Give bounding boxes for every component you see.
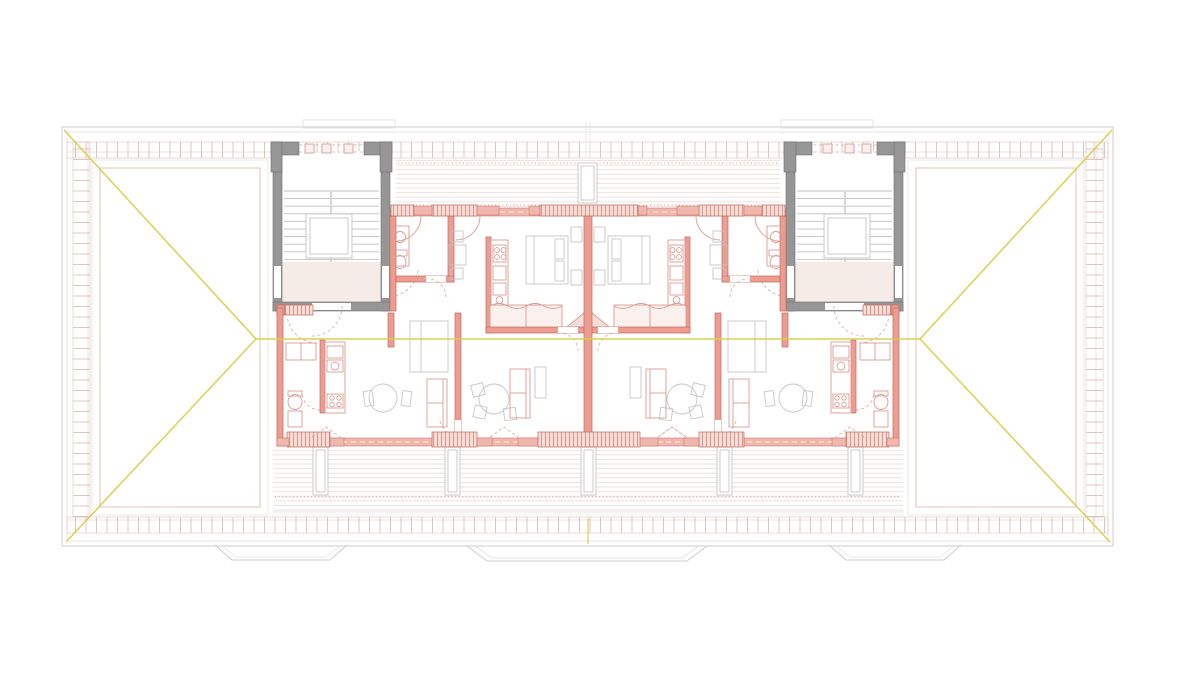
living-furniture [471,367,546,421]
wing-kitchen-wall [320,340,325,413]
nightstand [571,270,582,285]
sofa [510,369,530,418]
wing-bathroom [286,343,320,427]
roof-inset-pink-outline [100,168,260,507]
elevator-shaft [306,214,352,258]
hip-line-top-left [64,130,256,339]
bottom-dormers [215,545,961,561]
nightstand [571,227,582,242]
south-center-window [538,432,640,447]
tile-band-top [67,142,1108,158]
kitchen-counter [491,240,508,308]
hip-line-bottom-right [920,339,1110,542]
terrace-door-arc [456,216,480,240]
lower-terrace [273,446,903,515]
core-entry-doors [299,144,363,153]
wing-unit [277,305,461,446]
wing-living-furniture [363,321,448,427]
hip-line-bottom-left [66,339,256,542]
french-door-mark [490,427,518,437]
bed [526,227,582,285]
hip-line-top-right [920,130,1112,339]
north-center-window [540,205,638,216]
daybed [410,321,448,372]
center-unit [390,216,585,421]
roof-inset-outline [92,160,268,515]
tile-band-left [73,142,90,517]
floor-plan-drawing [0,0,1200,696]
wing-kitchenette [325,342,345,413]
party-wall [584,216,592,446]
floor-plan-page [0,0,1200,696]
toilet [288,395,302,410]
core-flank-wall [390,216,396,311]
entry-door-arc [396,216,421,241]
tile-band-right [1086,142,1103,517]
shower [288,411,302,427]
vestibule [282,262,381,302]
west-gable-wall [277,308,283,446]
coffee-table [535,367,546,398]
upper-terrace [396,158,780,208]
wing-north-window [285,305,313,315]
